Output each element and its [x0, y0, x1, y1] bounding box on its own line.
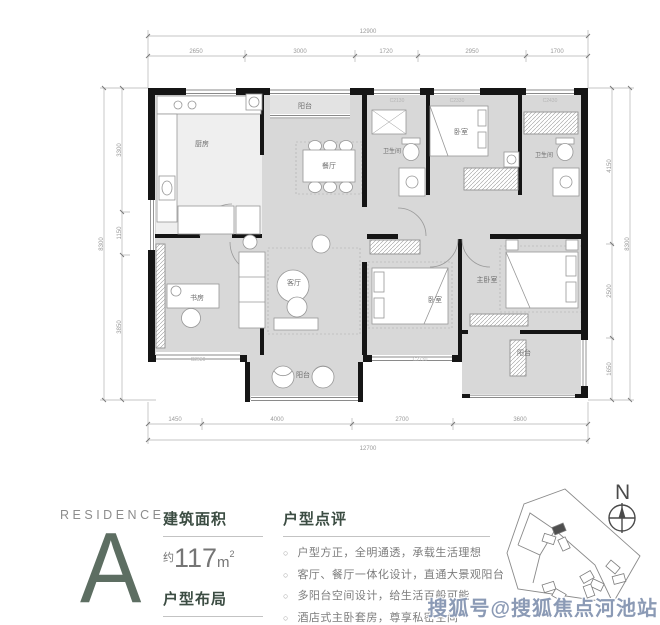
bullet-icon: ○: [283, 589, 288, 604]
balcony-right-furniture: [510, 340, 526, 376]
dim-right-seg: 4150: [607, 159, 613, 173]
page: 厨房 阳台 餐厅 卫生间 卧室 卫生间 书房 客厅 卧室 主卧室 阳台 阳台 C…: [0, 0, 660, 625]
area-number: 117: [174, 543, 217, 573]
bullet-icon: ○: [283, 568, 288, 583]
room-label-dining: 餐厅: [322, 161, 336, 170]
dim-left-seg: 3300: [117, 143, 123, 157]
dim-top-seg: 2650: [189, 49, 203, 55]
dim-bottom-seg: 1450: [168, 417, 182, 423]
room-label-kitchen: 厨房: [195, 139, 209, 148]
layout-title: 户型布局: [163, 588, 263, 617]
dim-left-seg: 3850: [117, 320, 123, 334]
dim-right-seg: 2500: [607, 284, 613, 298]
review-item: ○ 客厅、餐厅一体化设计，直通大景观阳台: [283, 568, 490, 583]
dim-top-seg: 2950: [465, 49, 479, 55]
room-label-bath-right: 卫生间: [535, 151, 553, 159]
window-code: C2430: [543, 98, 558, 104]
unit-letter: A: [80, 518, 141, 618]
review-title: 户型点评: [283, 508, 490, 537]
room-label-bath-left: 卫生间: [383, 147, 401, 155]
review-item-text: 客厅、餐厅一体化设计，直通大景观阳台: [297, 568, 504, 583]
dim-bottom-seg: 2700: [395, 417, 409, 423]
window-code: C2130: [390, 98, 405, 104]
highlighted-building: [552, 523, 566, 535]
dim-top-seg: 1720: [379, 49, 393, 55]
bullet-icon: ○: [283, 546, 288, 561]
area-title: 建筑面积: [163, 508, 263, 537]
bullet-icon: ○: [283, 611, 288, 625]
site-buildings: [542, 523, 626, 601]
balcony-top-furniture: [246, 94, 262, 110]
room-label-balcony-top: 阳台: [298, 101, 312, 110]
dim-top-seg: 1700: [550, 49, 564, 55]
review-item: ○ 户型方正，全明通透，承载生活理想: [283, 546, 490, 561]
room-label-bedroom-bottom: 卧室: [428, 295, 442, 304]
area-superscript: 2: [230, 549, 235, 559]
window-code: C2930: [191, 357, 206, 363]
area-unit: m: [217, 554, 230, 571]
dim-bottom-seg: 3600: [513, 417, 527, 423]
area-value: 约117m2: [163, 543, 263, 574]
site-boundary: [507, 489, 640, 603]
dim-left-total: 8300: [99, 237, 105, 251]
room-label-master: 主卧室: [477, 275, 498, 284]
dim-right-seg: 1650: [607, 362, 613, 376]
review-item-text: 户型方正，全明通透，承载生活理想: [297, 546, 481, 561]
window-code: C2330: [450, 98, 465, 104]
room-label-study: 书房: [190, 293, 204, 302]
dim-left-seg: 1150: [117, 226, 123, 240]
room-label-balcony-right: 阳台: [517, 348, 531, 357]
room-label-bedroom-top: 卧室: [454, 127, 468, 136]
watermark: 搜狐号@搜狐焦点河池站: [427, 592, 658, 621]
dim-right-total: 8300: [625, 237, 631, 251]
area-column: 建筑面积 约117m2 户型布局 四房两厅两卫: [163, 508, 263, 625]
area-approx: 约: [163, 552, 174, 564]
dim-bottom-seg: 4000: [270, 417, 284, 423]
dim-top-total: 12900: [360, 29, 377, 35]
floorplan: 厨房 阳台 餐厅 卫生间 卧室 卫生间 书房 客厅 卧室 主卧室 阳台 阳台 C…: [0, 0, 660, 472]
dim-top-seg: 3000: [293, 49, 307, 55]
window-code: C2730: [413, 357, 428, 363]
dim-bottom-total: 12700: [360, 446, 377, 452]
room-label-living: 客厅: [287, 278, 301, 287]
room-label-balcony-bottom: 阳台: [296, 370, 310, 379]
north-label: N: [615, 481, 630, 504]
north-compass: N: [609, 481, 635, 533]
